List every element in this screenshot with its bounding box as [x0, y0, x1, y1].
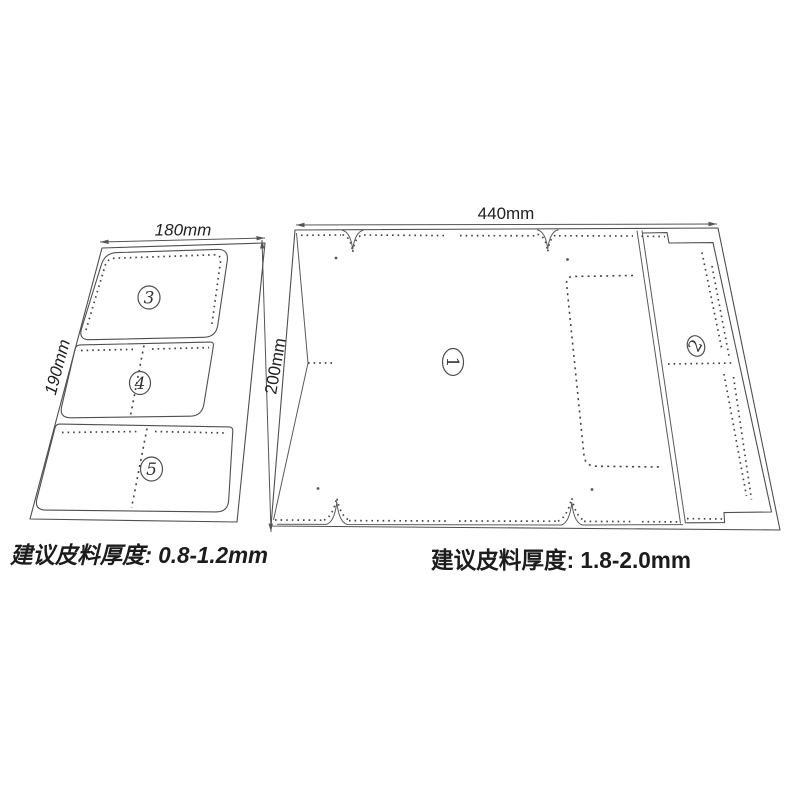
left-pattern-group: 180mm 190mm 3 4 5: [30, 221, 265, 523]
piece-5-outline: [36, 424, 232, 512]
dimension-arrow-right: [709, 222, 718, 226]
piece-5-stitch-line: [155, 432, 227, 434]
piece-1-badge: 1: [442, 357, 462, 368]
dimension-arrow-left: [296, 223, 305, 227]
piece-5-stitch-line: [62, 432, 140, 433]
piece-3-number: 3: [144, 289, 155, 309]
right-pattern-group: 440mm 200mm: [260, 204, 780, 532]
piece-4-stitch-line: [81, 349, 137, 350]
dimension-arrow-right: [256, 236, 265, 240]
piece-2-stitch-lines: [668, 253, 752, 520]
piece-2-outline: [643, 233, 772, 523]
right-width-dimension-label: 440mm: [478, 204, 535, 223]
stitch-segment: [734, 377, 752, 500]
stitch-segment: [364, 235, 447, 236]
stitch-notch-arc: [343, 235, 364, 253]
left-height-dimension-label: 190mm: [41, 337, 74, 397]
piece-4-stitch-line: [152, 348, 209, 349]
dimension-arrow-top: [260, 240, 264, 249]
fold-line: [642, 231, 686, 524]
right-outer-outline: [271, 228, 780, 530]
fold-line: [637, 231, 681, 524]
left-width-dimension-label: 180mm: [155, 221, 212, 240]
top-notch-cut: [342, 230, 364, 249]
piece-5-center-fold-line: [132, 429, 148, 509]
piece-4-number: 4: [134, 374, 146, 394]
rivet-hole: [591, 488, 594, 491]
rivet-hole: [317, 487, 320, 490]
stitch-notch-arc: [538, 234, 559, 252]
top-notch-cut: [537, 230, 559, 249]
left-thickness-note: 建议皮料厚度: 0.8-1.2mm: [9, 542, 268, 568]
stitch-notch-arc: [324, 498, 350, 521]
dimension-arrow-left: [100, 240, 109, 244]
piece-5-number: 5: [146, 460, 157, 480]
left-height-dimension: 190mm: [41, 337, 74, 397]
stitch-notch-arc: [558, 498, 585, 521]
leather-pattern-diagram-page: 180mm 190mm 3 4 5 440mm: [0, 0, 800, 800]
pattern-diagram-svg: 180mm 190mm 3 4 5 440mm: [0, 0, 800, 800]
stitch-segment: [724, 374, 747, 496]
right-thickness-note: 建议皮料厚度: 1.8-2.0mm: [431, 547, 691, 573]
rivet-hole: [335, 257, 338, 260]
piece-1-number: 1: [442, 357, 462, 368]
dimension-line-440: [296, 224, 717, 225]
rivet-hole: [566, 258, 569, 261]
stitch-segment: [668, 363, 735, 364]
